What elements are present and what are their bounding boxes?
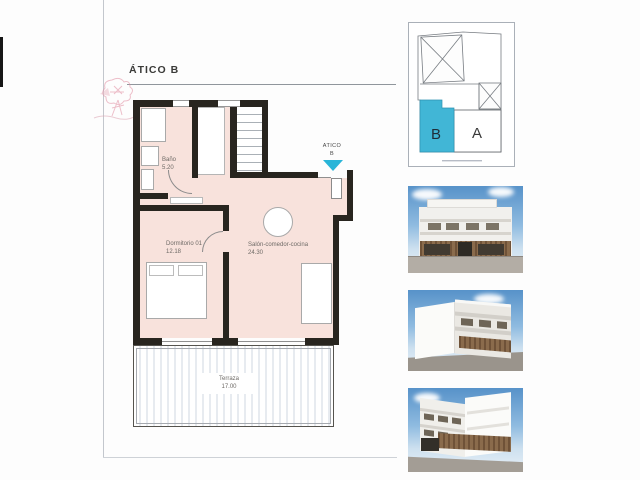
entrance-label-line1: ATICO	[312, 143, 352, 151]
room-name: Baño	[162, 156, 176, 164]
window	[461, 318, 473, 326]
entrance-label: ATICO B	[312, 143, 352, 158]
room-name: Dormitorio 01	[166, 240, 202, 248]
photo-building-angle-left	[408, 290, 523, 371]
entry-door-leaf	[331, 178, 342, 199]
pavement	[408, 256, 523, 273]
wall-bottom-c	[305, 338, 339, 345]
room-label-bano: Baño 5.20	[162, 156, 176, 172]
wall-bath-bottom	[140, 193, 168, 199]
balcony-rail	[467, 406, 509, 414]
terrace-slider-glass-1	[162, 341, 212, 342]
hall-ledge	[170, 197, 203, 204]
wall-entrance	[230, 172, 318, 178]
wall-stair-right	[262, 107, 268, 172]
wood-slat-band	[459, 336, 511, 353]
terrace-slider-glass-2	[238, 341, 305, 342]
balcony-rail	[420, 232, 511, 235]
cloud	[488, 187, 514, 197]
toilet	[141, 169, 154, 190]
window-top-1	[173, 100, 189, 107]
wall-top-c	[240, 100, 268, 107]
key-plan-caption-line	[442, 160, 482, 161]
room-area: 12.18	[166, 248, 202, 256]
sink	[141, 146, 159, 166]
balcony-rail	[467, 422, 509, 430]
unit-b-letter: B	[431, 126, 441, 143]
closet-shaft	[195, 107, 225, 175]
building-side-face	[415, 302, 455, 359]
key-plan: B A	[408, 22, 515, 167]
room-label-salon: Salón-comedor-cocina 24.30	[248, 241, 308, 257]
room-area: 17.00	[202, 383, 256, 391]
wall-bath-right	[192, 107, 198, 178]
wall-right-upper	[347, 170, 353, 221]
dining-table-round	[263, 207, 293, 237]
window	[497, 321, 507, 329]
wall-stair-left	[230, 107, 237, 172]
window	[446, 223, 459, 230]
entrance-doorway	[458, 242, 472, 256]
stairwell	[237, 107, 262, 172]
wall-bedroom-top	[140, 205, 229, 211]
entrance-label-line2: B	[312, 151, 352, 159]
building-front-face	[455, 300, 511, 359]
sofa	[301, 263, 332, 324]
wall-bedroom-right-a	[223, 211, 229, 231]
shower	[141, 108, 166, 142]
window	[466, 223, 479, 230]
wall-top-b	[189, 100, 218, 107]
room-area: 5.20	[162, 164, 176, 172]
wall-bottom-a	[133, 338, 162, 345]
balcony-rail	[420, 219, 511, 222]
window	[452, 417, 461, 424]
dark-opening	[424, 244, 450, 255]
floor-plan: Terraza 17.00 Baño 5.20 Dormitorio 01 12…	[0, 0, 400, 480]
room-label-terraza: Terraza 17.00	[202, 373, 256, 394]
wall-right-lower	[333, 221, 339, 338]
window-top-2	[218, 100, 240, 107]
bed-pillow-right	[178, 265, 203, 276]
unit-a-letter: A	[472, 125, 482, 142]
wall-left	[133, 100, 140, 345]
room-name: Salón-comedor-cocina	[248, 241, 308, 249]
dark-opening	[478, 244, 504, 255]
photo-building-front-elevation	[408, 186, 523, 273]
window	[486, 223, 499, 230]
bed-pillow-left	[149, 265, 174, 276]
window	[438, 415, 448, 422]
window	[428, 223, 441, 230]
window	[424, 413, 434, 420]
room-name: Terraza	[202, 375, 256, 383]
window	[479, 320, 491, 328]
room-area: 24.30	[248, 249, 308, 257]
photo-building-angle-right	[408, 388, 523, 472]
garage-door	[421, 438, 439, 451]
wall-bedroom-right-b	[223, 252, 229, 338]
room-label-dormitorio: Dormitorio 01 12.18	[166, 240, 202, 256]
key-plan-drawing: B A	[409, 23, 514, 166]
wall-bottom-b	[212, 338, 238, 345]
entry-threshold-line	[318, 177, 331, 178]
entrance-arrow-icon	[323, 160, 343, 171]
window	[424, 429, 434, 436]
penthouse-level	[427, 199, 497, 208]
scanned-floor-plan-sheet: ÁTICO B	[0, 0, 640, 480]
